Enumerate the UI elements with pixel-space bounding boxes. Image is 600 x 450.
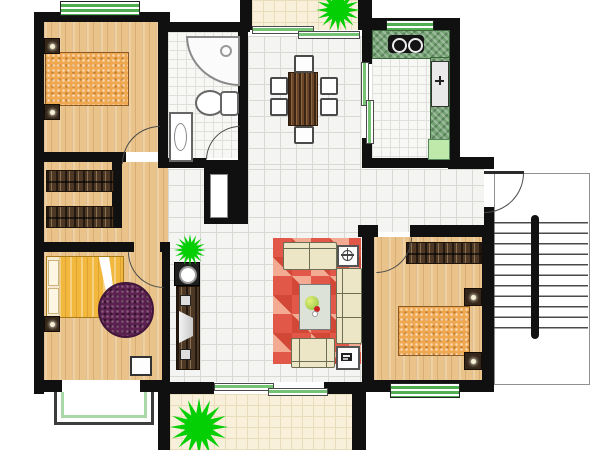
device xyxy=(341,353,352,361)
dining-chair-6 xyxy=(294,126,314,144)
dining-chair-1 xyxy=(270,77,288,95)
stair-treads xyxy=(494,222,588,336)
bedroom2-round-rug xyxy=(98,282,154,338)
bay-window-glass xyxy=(61,392,147,418)
wall-bedroom1-bottom xyxy=(34,152,126,162)
wardrobe-1 xyxy=(46,170,114,192)
bedroom1-nightstand-bottom xyxy=(44,104,60,120)
stove-burner-icon xyxy=(408,38,423,53)
bedroom1-window xyxy=(60,1,140,16)
bedroom2-stool xyxy=(130,356,152,376)
armchair-bottom xyxy=(291,338,335,368)
bedroom1-nightstand-top xyxy=(44,38,60,54)
speaker-bottom xyxy=(180,349,191,360)
dining-chair-4 xyxy=(320,98,338,116)
bedroom3-window xyxy=(390,383,460,398)
wardrobe-2 xyxy=(46,206,114,228)
living-balcony-slider xyxy=(214,383,274,391)
washbasin xyxy=(169,112,193,162)
bed-pillow-2 xyxy=(48,288,59,314)
fridge xyxy=(428,139,450,160)
washing-machine-icon xyxy=(174,262,200,286)
wall-hall-top-right xyxy=(448,157,494,169)
kitchen-sink xyxy=(431,61,449,107)
duct-shaft-niche xyxy=(210,174,228,218)
wall-bedroom2-top xyxy=(34,242,134,252)
tv-cabinet xyxy=(176,286,200,370)
washing-machine-drum xyxy=(179,266,197,284)
wall-bathroom-top xyxy=(158,22,250,32)
wall-balcony-top-left xyxy=(240,0,252,30)
bedroom1-bed xyxy=(45,52,129,106)
stair-handrail xyxy=(531,215,539,339)
balcony-top-slider-2 xyxy=(298,31,360,39)
bedroom3-nightstand-top xyxy=(464,288,482,306)
shower-drain xyxy=(220,45,232,57)
toilet-tank xyxy=(220,91,239,116)
bay-window xyxy=(54,392,154,425)
floor-plan xyxy=(0,0,600,450)
loveseat-top xyxy=(283,242,337,270)
table-plant-dot xyxy=(312,311,318,317)
bed-pillow-1 xyxy=(48,260,59,286)
washbasin-bowl xyxy=(174,123,187,151)
dining-table xyxy=(288,72,318,126)
side-table-device xyxy=(336,346,360,370)
wall-left-outer xyxy=(34,12,44,394)
dining-chair-2 xyxy=(270,98,288,116)
wall-balcony-bottom-right xyxy=(352,390,366,450)
wall-bedroom3-left xyxy=(362,234,374,392)
sofa-right xyxy=(336,268,362,344)
kitchen-slider-2 xyxy=(366,100,374,144)
tv-icon xyxy=(179,311,193,343)
stove xyxy=(388,35,424,53)
wall-bedroom3-right xyxy=(482,234,494,392)
coffee-table xyxy=(299,284,331,330)
wall-balcony-bottom-left xyxy=(158,392,170,450)
stove-burner-icon xyxy=(392,38,407,53)
bedroom3-bed xyxy=(398,306,470,356)
wall-kitchen-left-upper xyxy=(362,30,372,64)
plant-starburst-icon-hall xyxy=(174,234,206,266)
wardrobe-3 xyxy=(406,242,482,264)
bedroom3-nightstand-bottom xyxy=(464,352,482,370)
side-table-flower xyxy=(337,245,359,267)
living-balcony-slider-2 xyxy=(268,388,328,396)
wall-bedroom2-bottom-a xyxy=(34,380,62,392)
faucet-icon-stem xyxy=(439,76,441,85)
bedroom2-nightstand xyxy=(44,316,60,332)
dining-chair-3 xyxy=(320,77,338,95)
speaker-top xyxy=(180,295,191,306)
dining-chair-5 xyxy=(294,55,314,73)
